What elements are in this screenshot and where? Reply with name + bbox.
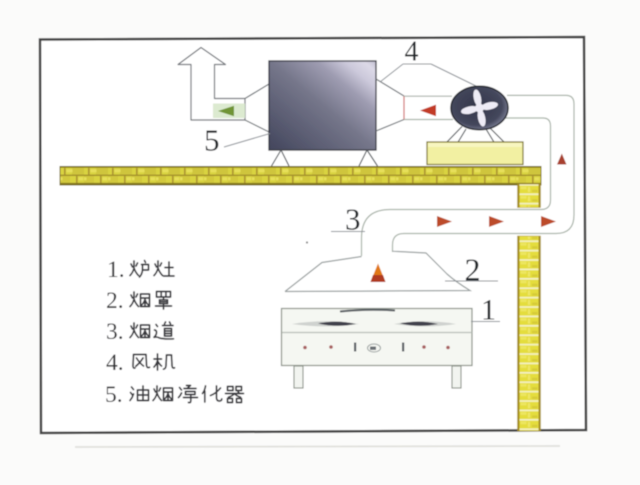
svg-text:1.: 1. xyxy=(107,257,125,283)
svg-text:1: 1 xyxy=(481,294,496,327)
svg-text:5.: 5. xyxy=(105,382,123,408)
svg-text:3: 3 xyxy=(345,202,361,237)
svg-text:2.: 2. xyxy=(106,288,124,314)
svg-text:5: 5 xyxy=(204,123,220,158)
svg-text:3.: 3. xyxy=(106,319,124,345)
svg-text:2: 2 xyxy=(465,252,481,288)
svg-text:4: 4 xyxy=(405,37,419,68)
svg-text:4.: 4. xyxy=(106,350,124,376)
